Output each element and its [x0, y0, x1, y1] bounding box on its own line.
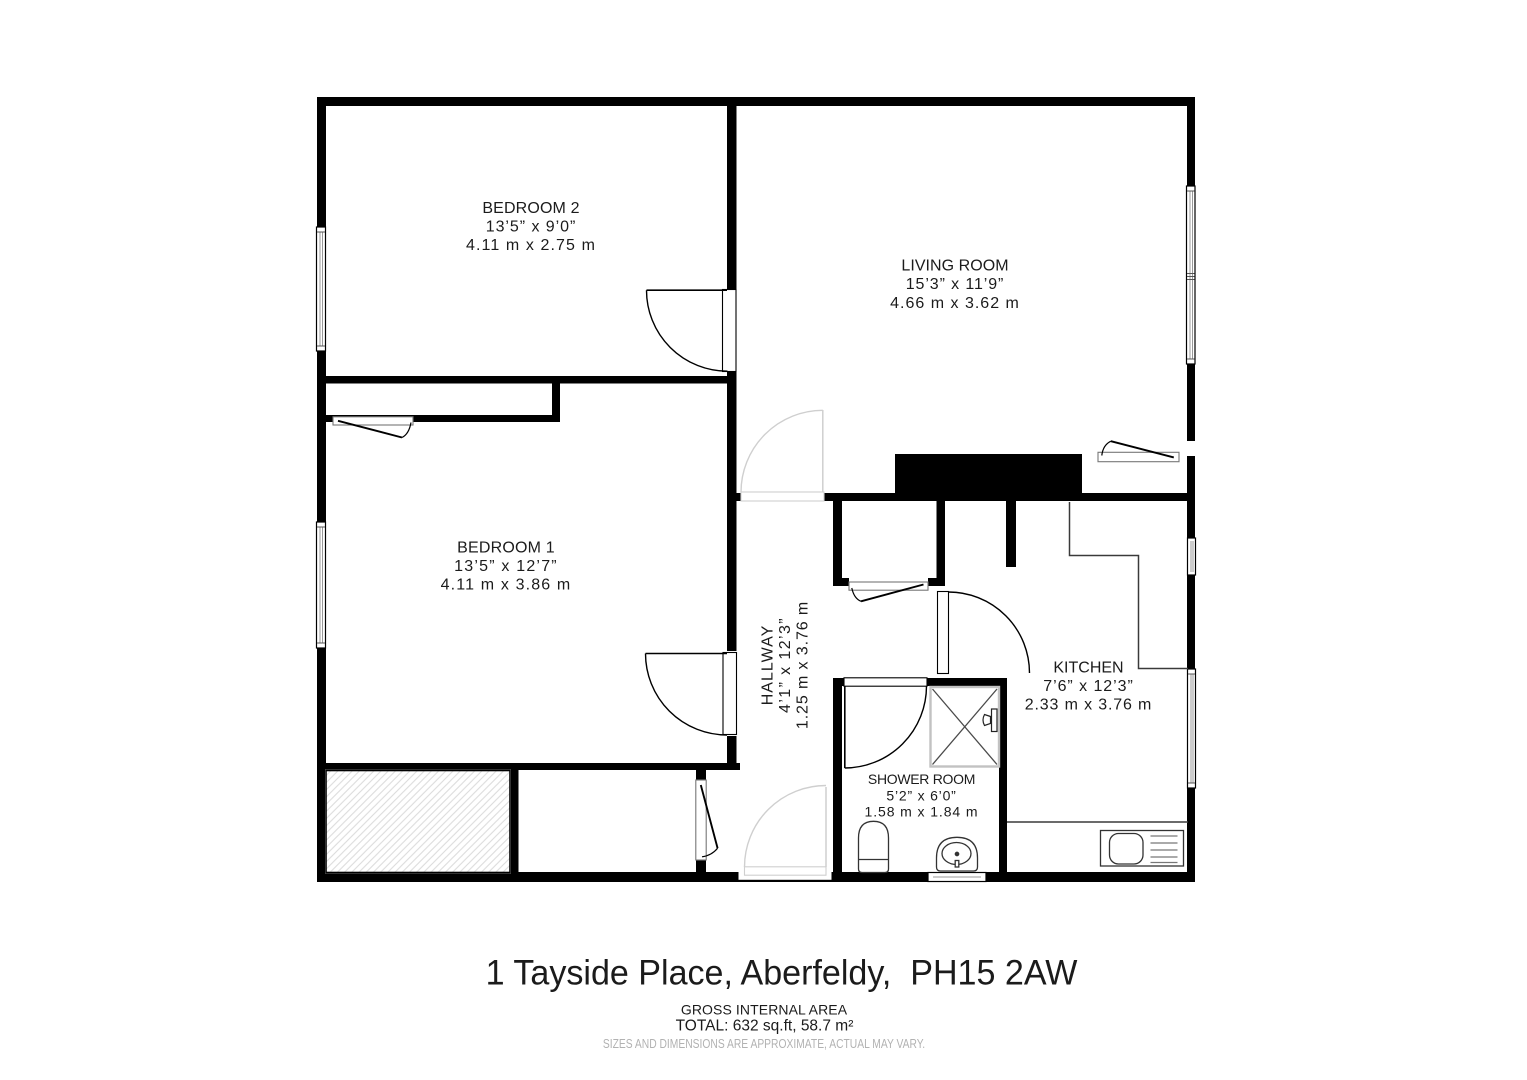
svg-text:1.58 m x 1.84 m: 1.58 m x 1.84 m — [865, 804, 979, 820]
svg-text:BEDROOM 2: BEDROOM 2 — [482, 200, 579, 217]
svg-text:KITCHEN: KITCHEN — [1053, 660, 1123, 677]
svg-text:5’2” x 6’0”: 5’2” x 6’0” — [886, 788, 956, 804]
svg-text:4.66 m x 3.62 m: 4.66 m x 3.62 m — [890, 295, 1020, 312]
svg-text:LIVING ROOM: LIVING ROOM — [901, 258, 1008, 275]
svg-text:1 Tayside Place, Aberfeldy, P: 1 Tayside Place, Aberfeldy, PH15 2AW — [486, 953, 1078, 993]
svg-text:7’6” x 12’3”: 7’6” x 12’3” — [1043, 678, 1134, 695]
svg-text:BEDROOM 1: BEDROOM 1 — [457, 540, 555, 557]
svg-text:SIZES AND DIMENSIONS ARE APPRO: SIZES AND DIMENSIONS ARE APPROXIMATE, AC… — [603, 1037, 925, 1051]
svg-text:SHOWER ROOM: SHOWER ROOM — [868, 771, 975, 787]
svg-text:TOTAL: 632 sq.ft, 58.7 m²: TOTAL: 632 sq.ft, 58.7 m² — [676, 1018, 854, 1035]
svg-text:HALLWAY: HALLWAY — [759, 625, 776, 706]
svg-text:13’5” x 12’7”: 13’5” x 12’7” — [454, 558, 558, 575]
svg-text:13’5” x 9’0”: 13’5” x 9’0” — [486, 219, 577, 236]
svg-text:GROSS INTERNAL AREA: GROSS INTERNAL AREA — [681, 1002, 848, 1018]
svg-text:4’1” x 12’3”: 4’1” x 12’3” — [777, 617, 794, 713]
svg-text:1.25 m x 3.76 m: 1.25 m x 3.76 m — [794, 601, 811, 729]
svg-text:4.11 m x 2.75 m: 4.11 m x 2.75 m — [466, 237, 596, 254]
svg-text:15’3” x 11’9”: 15’3” x 11’9” — [906, 276, 1005, 293]
svg-text:2.33 m x 3.76 m: 2.33 m x 3.76 m — [1025, 697, 1152, 714]
svg-text:4.11 m x 3.86 m: 4.11 m x 3.86 m — [441, 577, 572, 594]
